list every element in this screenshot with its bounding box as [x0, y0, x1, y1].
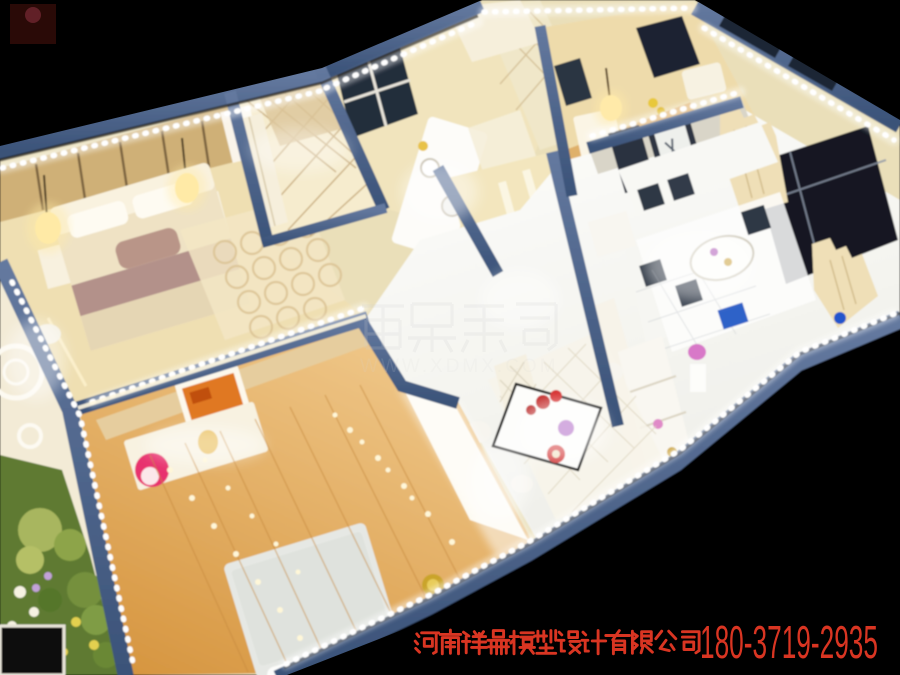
svg-text:180-3719-2935: 180-3719-2935	[700, 616, 878, 668]
svg-text:WWW.XDMX.COM: WWW.XDMX.COM	[360, 356, 559, 377]
